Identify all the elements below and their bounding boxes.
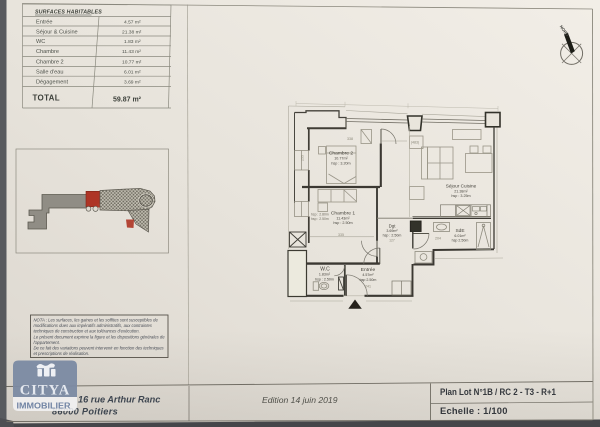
svg-text:338: 338 — [347, 137, 353, 141]
svg-text:Echelle : 1/100: Echelle : 1/100 — [440, 405, 508, 416]
svg-text:1.83 m²: 1.83 m² — [124, 39, 141, 45]
svg-text:Salle d'eau: Salle d'eau — [36, 69, 64, 75]
svg-text:11.43m²: 11.43m² — [336, 216, 350, 220]
svg-text:Dégagement: Dégagement — [36, 79, 68, 85]
svg-text:3.69 m²: 3.69 m² — [124, 79, 141, 85]
svg-text:hsp : 3.20m: hsp : 3.20m — [331, 161, 350, 165]
svg-text:1.83m²: 1.83m² — [319, 273, 331, 277]
svg-text:CITYA: CITYA — [20, 383, 70, 399]
svg-text:WC: WC — [36, 39, 45, 45]
svg-text:Chambre 2: Chambre 2 — [36, 60, 64, 66]
svg-text:6.01 m²: 6.01 m² — [124, 69, 141, 75]
svg-text:TOTAL: TOTAL — [33, 94, 60, 103]
svg-text:6.01m²: 6.01m² — [454, 234, 466, 238]
svg-text:241: 241 — [365, 285, 371, 289]
svg-text:4.57 m²: 4.57 m² — [124, 20, 141, 26]
svg-text:11.43 m²: 11.43 m² — [122, 49, 141, 55]
svg-text:(483): (483) — [411, 141, 419, 145]
svg-text:Le présent document exprime la: Le présent document exprime la figure et… — [34, 334, 166, 339]
svg-text:hsp : 3.25m: hsp : 3.25m — [451, 194, 470, 198]
svg-text:59.87 m²: 59.87 m² — [113, 97, 142, 104]
svg-text:hsp : 2.50m: hsp : 2.50m — [383, 234, 402, 238]
svg-text:204: 204 — [435, 237, 441, 241]
svg-text:3.69m²: 3.69m² — [386, 229, 398, 233]
svg-text:Séjour Cuisine: Séjour Cuisine — [446, 184, 477, 189]
svg-text:De ce fait des variations peuv: De ce fait des variations peuvent interv… — [34, 346, 165, 351]
svg-text:335: 335 — [338, 233, 344, 237]
svg-text:modifications dues aux impérat: modifications dues aux impératifs admini… — [34, 323, 153, 328]
svg-text:Plan Lot N°1B / RC 2 - T3 - R+: Plan Lot N°1B / RC 2 - T3 - R+1 — [440, 387, 556, 397]
svg-text:techniques de construction et: techniques de construction et aux toléra… — [34, 329, 140, 334]
svg-text:Séjour & Cuisine: Séjour & Cuisine — [36, 29, 78, 35]
svg-text:hsp : 2.50m: hsp : 2.50m — [315, 277, 334, 281]
svg-text:Edition 14 juin 2019: Edition 14 juin 2019 — [262, 395, 338, 405]
svg-text:hsp : 2.50m: hsp : 2.50m — [311, 217, 329, 221]
svg-text:IMMOBILIER: IMMOBILIER — [17, 401, 72, 411]
svg-text:et prescriptions de réalisatio: et prescriptions de réalisation. — [34, 351, 90, 356]
svg-text:255: 255 — [301, 155, 305, 161]
svg-text:4.57m²: 4.57m² — [362, 273, 374, 277]
svg-text:hsp 2.50m: hsp 2.50m — [452, 238, 469, 242]
svg-text:21.38 m²: 21.38 m² — [122, 29, 142, 35]
svg-text:NOTA : Les surfaces, les gaine: NOTA : Les surfaces, les gaines et les s… — [34, 318, 159, 323]
svg-text:hsp 2.50m: hsp 2.50m — [360, 278, 377, 282]
svg-text:21.38m²: 21.38m² — [454, 189, 468, 193]
svg-text:Dgt: Dgt — [389, 224, 397, 229]
svg-text:Chambre: Chambre — [36, 49, 59, 55]
svg-text:127: 127 — [389, 239, 395, 243]
svg-text:16 rue Arthur Ranc: 16 rue Arthur Ranc — [78, 395, 160, 405]
svg-text:SURFACES HABITABLES: SURFACES HABITABLES — [35, 10, 102, 16]
svg-text:l'appartement.: l'appartement. — [34, 340, 60, 345]
svg-text:10.77m²: 10.77m² — [334, 157, 348, 161]
svg-text:hsp : 2.50m: hsp : 2.50m — [333, 221, 352, 225]
svg-text:Entrée: Entrée — [36, 20, 52, 26]
svg-text:10.77 m²: 10.77 m² — [122, 60, 142, 66]
